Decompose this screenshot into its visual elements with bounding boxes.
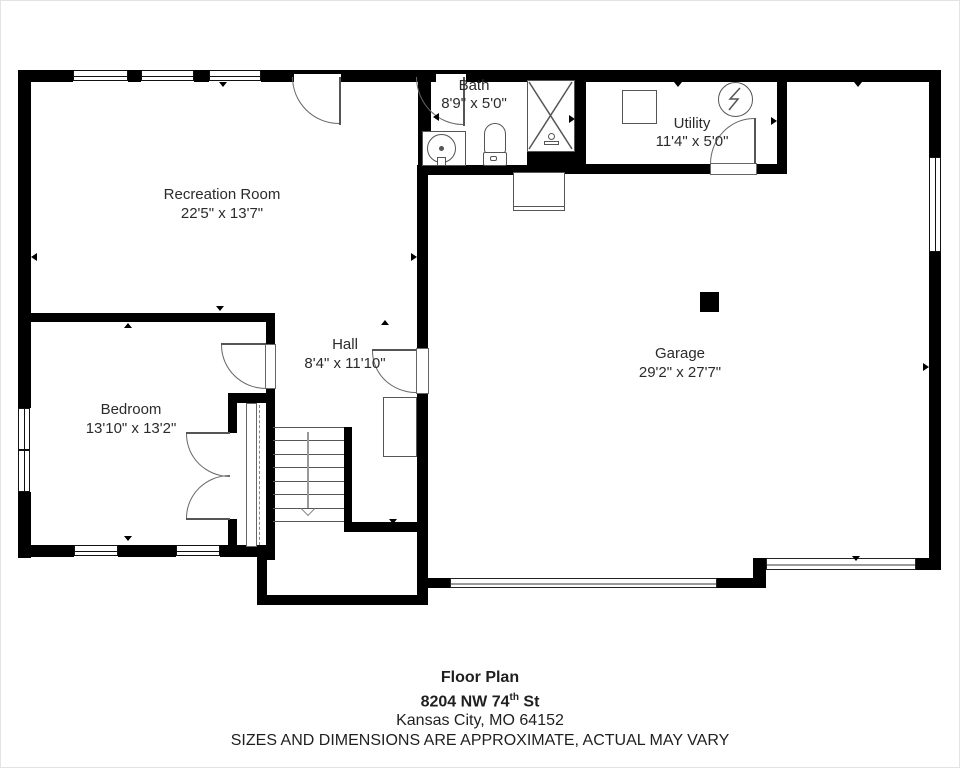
dimension-marker — [569, 115, 575, 123]
door-threshold — [710, 163, 757, 175]
room-dims: 8'4" x 11'10" — [270, 354, 420, 373]
dimension-marker — [124, 536, 132, 541]
door-leaf — [339, 77, 341, 125]
wall-segment — [417, 165, 428, 349]
room-name: Bedroom — [41, 400, 221, 419]
wall-segment — [257, 595, 427, 605]
window — [209, 70, 261, 81]
closet-door-swing-arc — [186, 475, 230, 518]
wall-segment — [261, 70, 294, 82]
room-dims: 8'9" x 5'0" — [414, 95, 534, 113]
dimension-marker — [389, 519, 397, 524]
wall-segment — [18, 313, 273, 322]
furnace-inner-line — [514, 206, 564, 207]
address-number: 8204 NW 74 — [421, 693, 510, 710]
closet-track — [246, 403, 257, 547]
dimension-marker — [411, 253, 417, 261]
door-lintel — [436, 70, 466, 74]
room-dims: 22'5" x 13'7" — [122, 204, 322, 223]
room-label-utility: Utility 11'4" x 5'0" — [612, 115, 772, 151]
room-name: Bath — [414, 77, 534, 95]
floor-plan-canvas: Recreation Room 22'5" x 13'7" Bath 8'9" … — [0, 0, 960, 768]
furnace — [513, 172, 565, 211]
room-label-recreation: Recreation Room 22'5" x 13'7" — [122, 185, 322, 223]
window — [18, 450, 30, 492]
door-lintel — [294, 70, 341, 74]
wall-segment — [586, 164, 710, 174]
sink-drain — [439, 146, 444, 151]
room-label-bath: Bath 8'9" x 5'0" — [414, 77, 534, 113]
dimension-marker — [381, 320, 389, 325]
wall-segment — [417, 394, 428, 605]
dimension-marker — [466, 166, 474, 171]
room-name: Garage — [580, 344, 780, 363]
dimension-marker — [854, 82, 862, 87]
wall-segment — [118, 545, 176, 557]
window — [141, 70, 194, 81]
door-swing-arc — [221, 345, 266, 389]
wall-segment — [228, 393, 267, 403]
address-ordinal-suffix: th — [510, 692, 519, 703]
wall-segment — [228, 519, 237, 547]
closet-door-leaf — [186, 518, 230, 520]
water-heater-icon — [718, 82, 753, 117]
window — [18, 408, 30, 450]
image-border — [0, 0, 960, 768]
toilet-bowl — [484, 123, 506, 154]
room-label-hall: Hall 8'4" x 11'10" — [270, 335, 420, 373]
wall-segment — [344, 427, 352, 532]
closet-door-swing-arc — [186, 434, 230, 477]
wall-segment — [777, 70, 787, 174]
window — [176, 545, 220, 556]
disclaimer-line: SIZES AND DIMENSIONS ARE APPROXIMATE, AC… — [0, 731, 960, 751]
wall-segment — [575, 70, 586, 174]
plan-title: Floor Plan — [0, 668, 960, 688]
wall-segment — [18, 545, 74, 557]
dimension-marker — [216, 306, 224, 311]
wall-segment — [929, 252, 941, 570]
city-line: Kansas City, MO 64152 — [0, 711, 960, 731]
dimension-marker — [31, 253, 37, 261]
room-label-bedroom: Bedroom 13'10" x 13'2" — [41, 400, 221, 438]
sink-faucet — [437, 157, 446, 166]
address-line: 8204 NW 74th St — [0, 688, 960, 712]
dimension-marker — [433, 113, 439, 121]
window — [929, 157, 941, 252]
dimension-marker — [124, 323, 132, 328]
support-post — [700, 292, 719, 312]
room-name: Hall — [270, 335, 420, 354]
toilet-flush-button — [490, 156, 497, 161]
window — [74, 545, 118, 556]
hall-shelf — [383, 397, 417, 457]
closet-rod-dashed — [259, 405, 260, 545]
door-swing-arc — [292, 77, 339, 124]
wall-segment — [128, 70, 141, 82]
wall-segment — [929, 70, 941, 157]
address-street: St — [519, 693, 539, 710]
room-dims: 29'2" x 27'7" — [580, 363, 780, 382]
dimension-marker — [852, 556, 860, 561]
title-block: Floor Plan 8204 NW 74th St Kansas City, … — [0, 668, 960, 750]
wall-segment — [344, 522, 427, 532]
wall-segment — [194, 70, 209, 82]
shower-valve-knob — [548, 133, 555, 140]
wall-segment — [18, 70, 31, 408]
dimension-marker — [674, 82, 682, 87]
dimension-marker — [923, 363, 929, 371]
room-label-garage: Garage 29'2" x 27'7" — [580, 344, 780, 382]
shower-valve-bar — [544, 141, 559, 145]
garage-door — [450, 578, 717, 588]
wall-segment — [753, 558, 766, 588]
room-name: Recreation Room — [122, 185, 322, 204]
wall-segment — [228, 403, 237, 433]
room-name: Utility — [612, 115, 772, 133]
room-dims: 13'10" x 13'2" — [41, 419, 221, 438]
wall-segment — [417, 578, 450, 588]
room-dims: 11'4" x 5'0" — [612, 133, 772, 151]
wall-segment — [916, 558, 941, 570]
window — [73, 70, 128, 81]
stair-direction-line — [307, 432, 309, 508]
dimension-marker — [219, 82, 227, 87]
garage-door — [766, 558, 916, 570]
